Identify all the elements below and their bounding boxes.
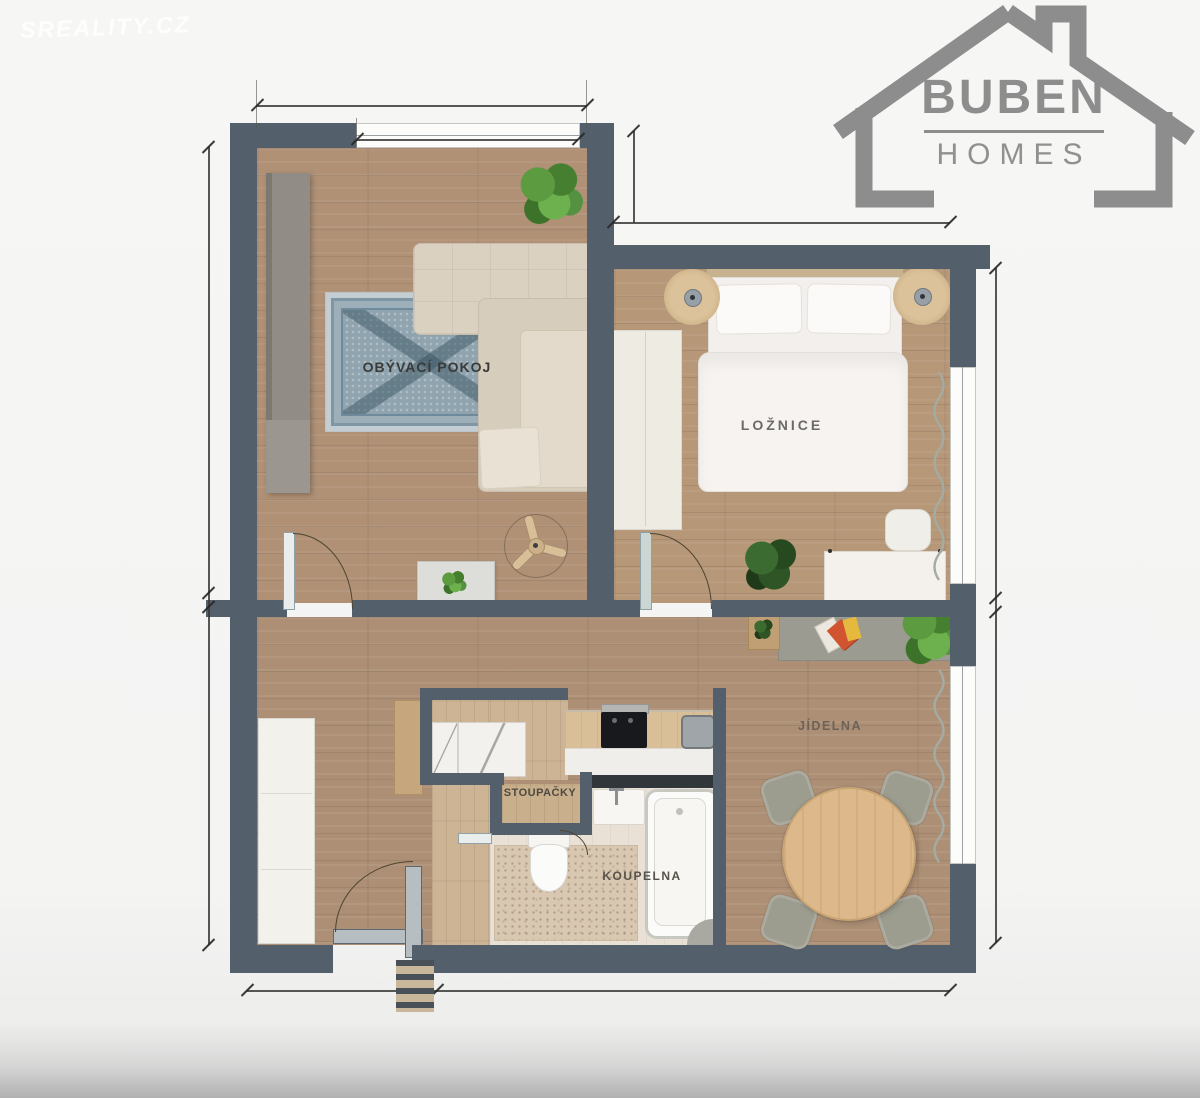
room-label-dining: JÍDELNA [770, 719, 890, 733]
kitchen-sink [681, 715, 715, 749]
bed-pillow [716, 283, 803, 334]
bathtub-drain [676, 808, 683, 815]
window-frame-line [962, 666, 963, 864]
dimension-line [208, 147, 210, 945]
bedroom-pouf [885, 509, 931, 551]
dimension-line [613, 222, 950, 224]
living-bedroom-divider-wall [587, 123, 614, 616]
curtain-icon [931, 668, 947, 864]
room-label-risers: STOUPAČKY [480, 787, 600, 799]
outer-wall-left [230, 123, 257, 973]
bathtub [645, 789, 719, 939]
dimension-line [633, 131, 635, 223]
cooktop [601, 712, 647, 748]
mid-wall-center [352, 600, 640, 617]
right-wall-upper [950, 245, 976, 369]
bench-foot [828, 549, 832, 553]
mid-wall-left [230, 600, 287, 617]
bottom-shade [0, 1024, 1200, 1098]
dining-table [782, 787, 916, 921]
watermark: SREALITY.CZ [20, 11, 192, 44]
bottom-wall-left [230, 945, 333, 973]
tv-cabinet-shelf [266, 420, 310, 493]
bathroom-door-leaf [458, 833, 492, 844]
risers-wall-bottom [490, 823, 592, 835]
dimension-extension [356, 118, 357, 148]
bathroom-vanity [593, 789, 645, 825]
floor-plan-canvas: SREALITY.CZ BUBEN HOMES [0, 0, 1200, 1098]
fan-hub-dot [533, 543, 538, 548]
core-wall-top [420, 688, 568, 700]
closet-door [458, 722, 526, 777]
hall-wardrobe-seam [261, 793, 312, 794]
core-wall-left [420, 688, 432, 785]
hall-wardrobe [258, 718, 315, 944]
kitchen-bath-right-wall [713, 688, 726, 945]
bottom-wall-right [412, 945, 975, 973]
closet-door [432, 722, 458, 777]
window-frame-line [356, 135, 580, 136]
curtain-icon [931, 370, 947, 582]
outer-wall-top-left [230, 123, 358, 148]
bed-pillow [807, 283, 892, 334]
nightstand-lamp-dot [690, 295, 695, 300]
living-room-window [356, 123, 580, 148]
logo-subtitle: HOMES [828, 138, 1200, 172]
sofa-throw-blanket [478, 426, 541, 489]
cooktop-knob [612, 718, 617, 723]
dimension-line [995, 268, 997, 943]
kitchen-counter-front [565, 748, 713, 775]
dimension-line [247, 990, 950, 992]
faucet-icon-bar [609, 788, 624, 791]
dimension-line [257, 105, 587, 107]
hall-cabinet [394, 700, 423, 795]
bathroom-top-wall [592, 775, 713, 788]
dining-window [950, 666, 976, 864]
right-wall-mid [950, 583, 976, 667]
logo-title: BUBEN [828, 70, 1200, 125]
nightstand-lamp-dot [920, 294, 925, 299]
bedroom-window [950, 367, 976, 584]
bathtub-inner [654, 798, 706, 926]
faucet-icon [615, 789, 618, 805]
bedroom-wardrobe [612, 330, 682, 530]
bedroom-top-wall [587, 245, 990, 269]
cooktop-knob [628, 718, 633, 723]
window-frame-line [962, 367, 963, 584]
mid-wall-right [712, 600, 950, 617]
room-label-bathroom: KOUPELNA [582, 869, 702, 883]
room-label-bedroom: LOŽNICE [702, 417, 862, 433]
logo-divider [924, 130, 1104, 133]
bedroom-wardrobe-seam [645, 332, 646, 526]
room-label-living: OBÝVACÍ POKOJ [327, 359, 527, 375]
staircase-symbol [396, 960, 434, 1012]
ceiling-fan-icon [504, 514, 568, 578]
dimension-line [357, 139, 578, 141]
hall-wardrobe-seam [261, 869, 312, 870]
brand-logo: BUBEN HOMES [828, 2, 1200, 208]
